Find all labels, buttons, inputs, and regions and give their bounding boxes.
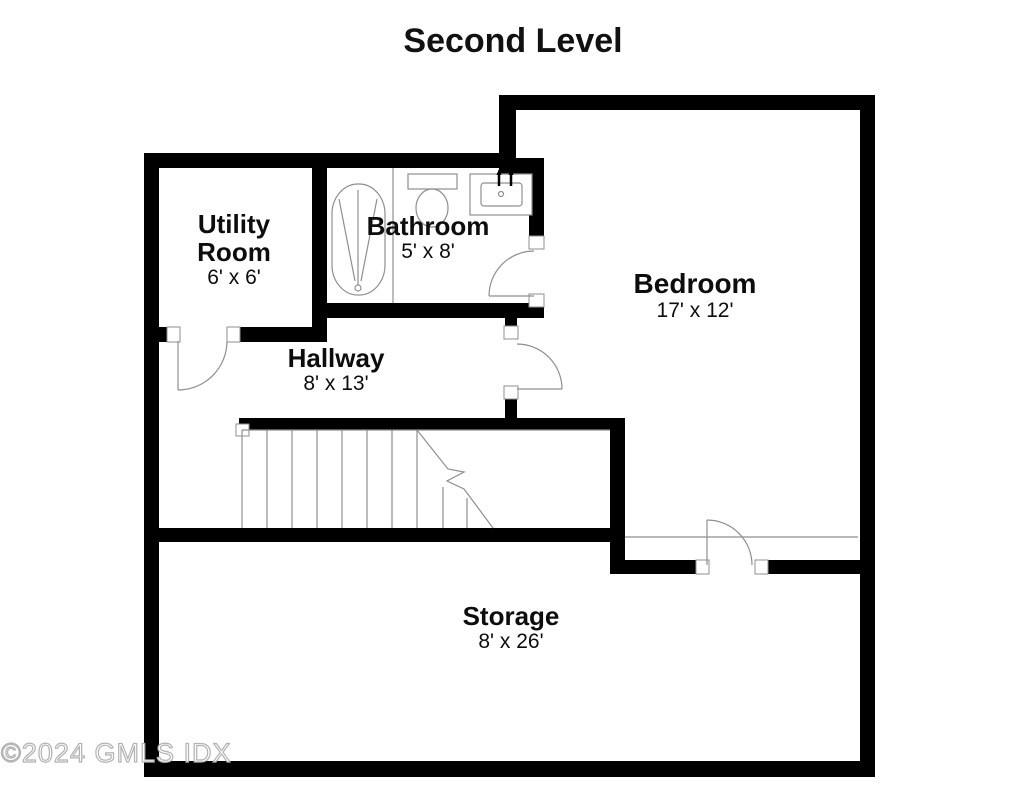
utility-door <box>178 341 227 390</box>
room-label-bedroom: Bedroom 17' x 12' <box>634 269 757 323</box>
room-label-bathroom: Bathroom 5' x 8' <box>367 212 490 264</box>
room-dimensions: 5' x 8' <box>367 240 490 264</box>
jamb-utility-left <box>167 327 180 342</box>
wall-bedroom-bottom-left <box>610 560 697 574</box>
jamb-utility-right <box>227 327 240 342</box>
jamb-storage-right <box>755 560 768 574</box>
wall-storage-top <box>144 528 625 542</box>
wall-bedroom-top <box>499 95 875 110</box>
room-name: Bathroom <box>367 212 490 240</box>
room-label-utility-room: Utility Room 6' x 6' <box>169 210 299 290</box>
watermark: ©2024 GMLS IDX <box>1 738 232 769</box>
bedroom-storage-door <box>707 520 752 565</box>
room-name: Utility Room <box>169 210 299 266</box>
wall-bathroom-bottom <box>312 303 544 318</box>
stair-break-line <box>417 430 493 528</box>
room-dimensions: 8' x 26' <box>463 630 560 654</box>
page-title: Second Level <box>403 22 622 61</box>
staircase <box>242 430 610 528</box>
room-name: Bedroom <box>634 269 757 299</box>
room-label-hallway: Hallway 8' x 13' <box>288 344 385 396</box>
wall-top-left-section <box>144 153 516 168</box>
floor-plan-drawing <box>0 0 1024 790</box>
room-dimensions: 6' x 6' <box>169 266 299 290</box>
room-name: Storage <box>463 602 560 630</box>
wall-bedroom-lower-left <box>610 418 625 573</box>
sink-vanity <box>470 169 532 215</box>
wall-stair-top <box>239 418 625 430</box>
bathroom-door <box>489 251 534 296</box>
bedroom-hall-door <box>517 344 562 389</box>
wall-utility-bottom-left <box>144 327 168 342</box>
jamb-bathroom-top <box>529 236 544 249</box>
room-dimensions: 8' x 13' <box>288 372 385 396</box>
wall-left <box>144 153 159 777</box>
jamb-bedroom-hall-bottom <box>504 386 518 399</box>
wall-bedroom-bottom-right <box>768 560 875 574</box>
floor-plan-page: Second Level <box>0 0 1024 790</box>
room-dimensions: 17' x 12' <box>634 299 757 323</box>
jamb-bedroom-hall-top <box>504 326 518 339</box>
room-name: Hallway <box>288 344 385 372</box>
wall-utility-bottom-right <box>239 327 327 342</box>
wall-right <box>860 95 875 777</box>
room-label-storage: Storage 8' x 26' <box>463 602 560 654</box>
wall-bottom <box>144 761 875 777</box>
